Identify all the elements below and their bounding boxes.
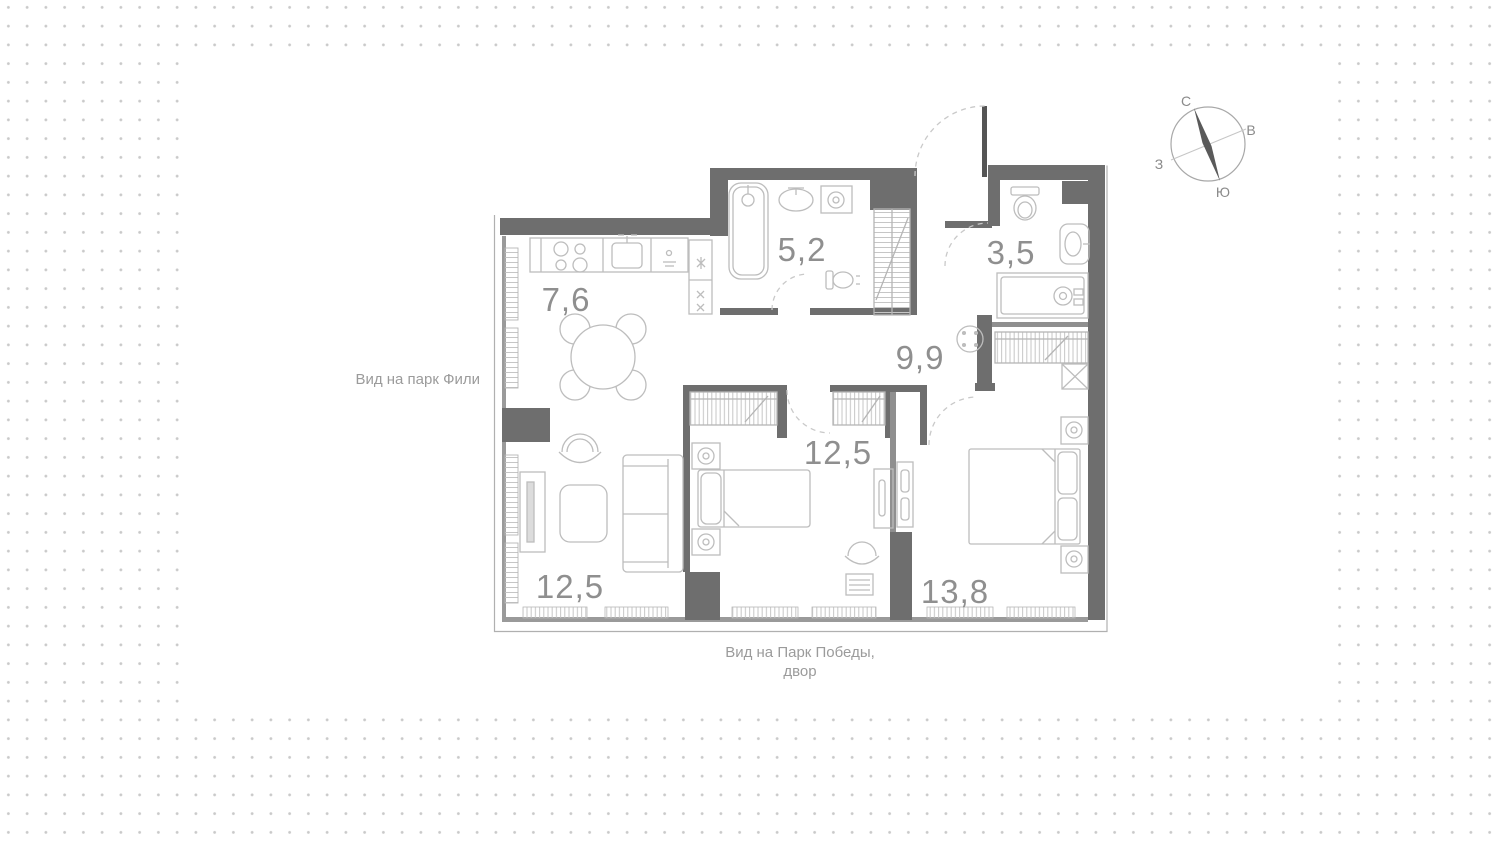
compass-south: Ю [1216, 184, 1230, 200]
compass-north: С [1181, 93, 1191, 109]
towel-ladder-icon [874, 209, 910, 315]
radiator-icon [505, 248, 518, 388]
wardrobe-icon [833, 392, 885, 425]
kitchen-counter [530, 238, 688, 272]
fridge-icon [689, 240, 712, 314]
room-label-bedroom-middle: 12,5 [804, 434, 872, 471]
radiator-icon [505, 455, 518, 603]
room-label-bedroom-right: 13,8 [921, 573, 989, 610]
room-label-bathroom: 5,2 [778, 231, 827, 268]
compass-west: З [1155, 156, 1163, 172]
entry-door-leaf [982, 106, 987, 177]
bed-icon [698, 470, 810, 527]
room-label-wc: 3,5 [987, 234, 1036, 271]
room-label-hallway: 9,9 [896, 339, 945, 376]
wardrobe-icon [995, 332, 1088, 363]
bed-icon [969, 449, 1080, 544]
view-label-bottom-line1: Вид на Парк Победы, [725, 644, 875, 661]
view-label-left: Вид на парк Фили [355, 371, 480, 388]
wardrobe-icon [690, 392, 777, 425]
room-label-living-room: 12,5 [536, 568, 604, 605]
view-label-bottom-line2: двор [783, 663, 816, 680]
floor-plan: 7,6 5,2 3,5 9,9 12,5 12,5 13,8 Вид на па… [0, 0, 1500, 842]
sofa-icon [623, 455, 683, 572]
compass-east: В [1246, 122, 1255, 138]
room-label-kitchen: 7,6 [542, 281, 591, 318]
